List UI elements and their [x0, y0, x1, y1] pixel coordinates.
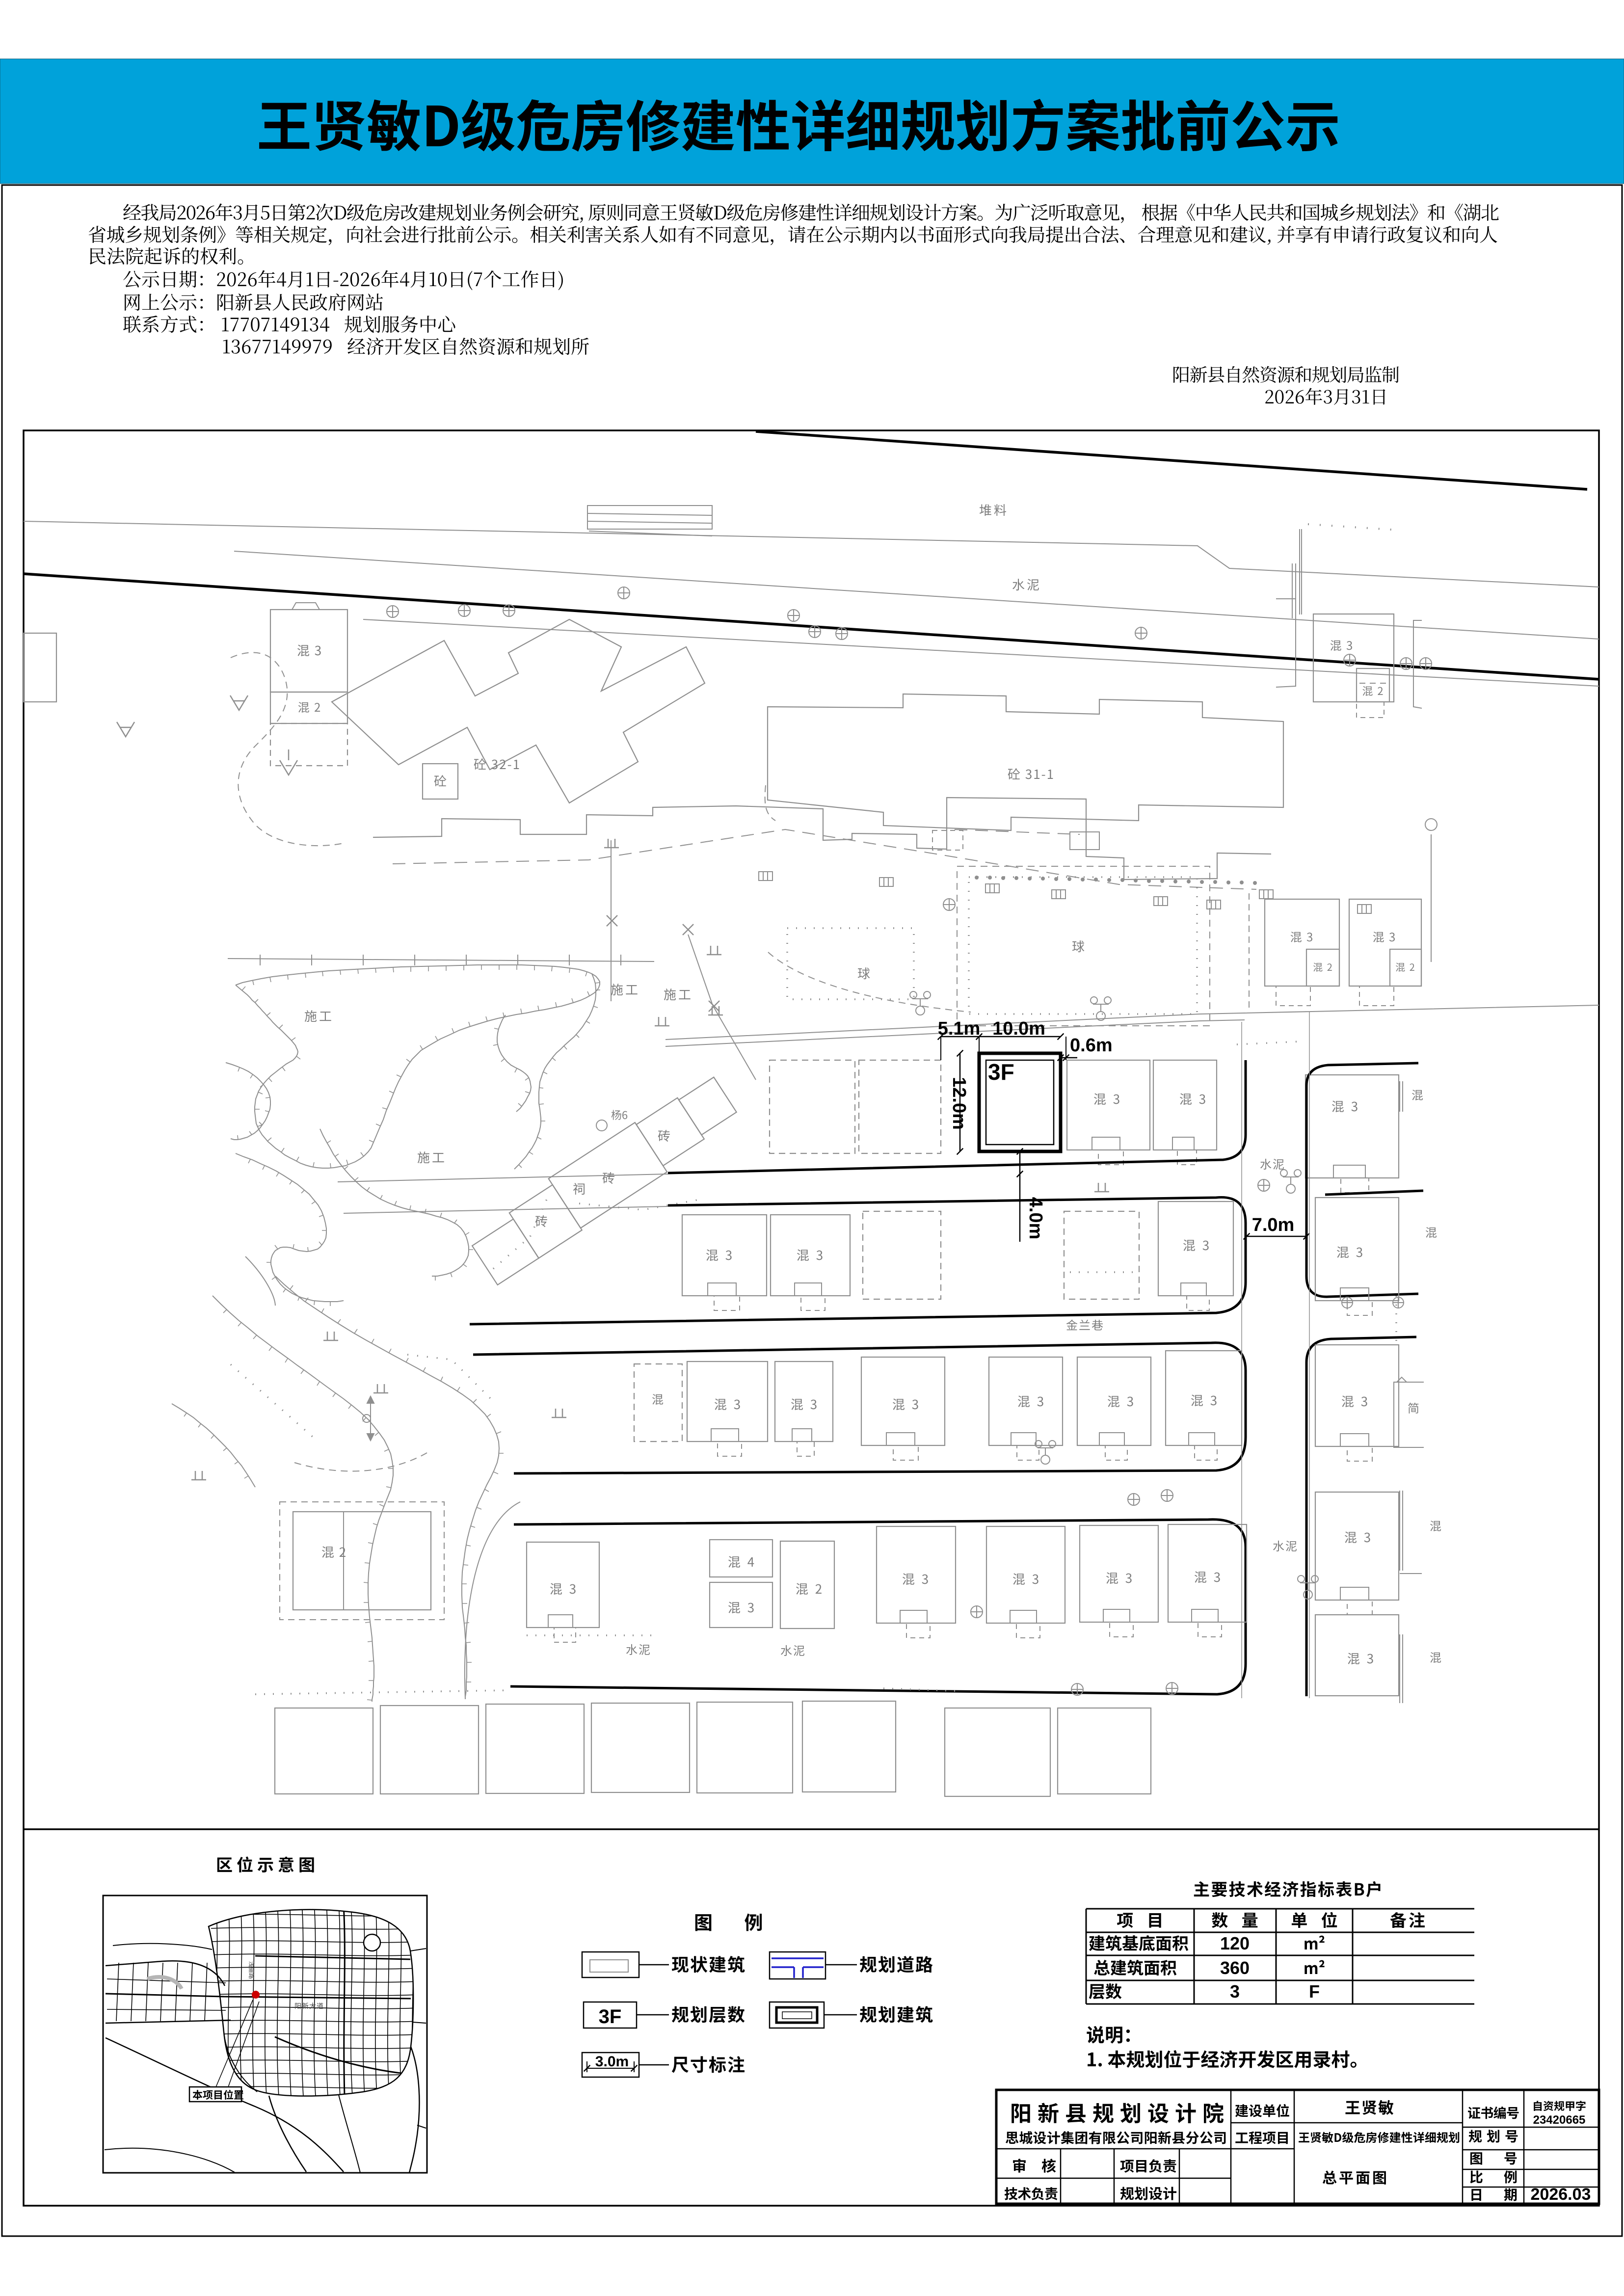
svg-text:0.6m: 0.6m [1070, 1035, 1113, 1056]
svg-text:2026.03: 2026.03 [1531, 2185, 1591, 2204]
svg-text:7.0m: 7.0m [1252, 1215, 1295, 1235]
svg-text:120: 120 [1220, 1933, 1250, 1953]
svg-text:3F: 3F [599, 2006, 622, 2028]
svg-text:4.0m: 4.0m [1025, 1197, 1046, 1240]
svg-text:10.0m: 10.0m [992, 1018, 1045, 1039]
svg-text:360: 360 [1220, 1958, 1250, 1978]
svg-text:3.0m: 3.0m [595, 2054, 629, 2070]
svg-text:23420665: 23420665 [1533, 2113, 1586, 2127]
svg-text:12.0m: 12.0m [949, 1077, 969, 1130]
svg-text:5.1m: 5.1m [938, 1018, 981, 1039]
svg-text:3: 3 [1230, 1981, 1240, 2002]
svg-text:F: F [1309, 1981, 1320, 2002]
svg-text:3F: 3F [988, 1059, 1014, 1085]
